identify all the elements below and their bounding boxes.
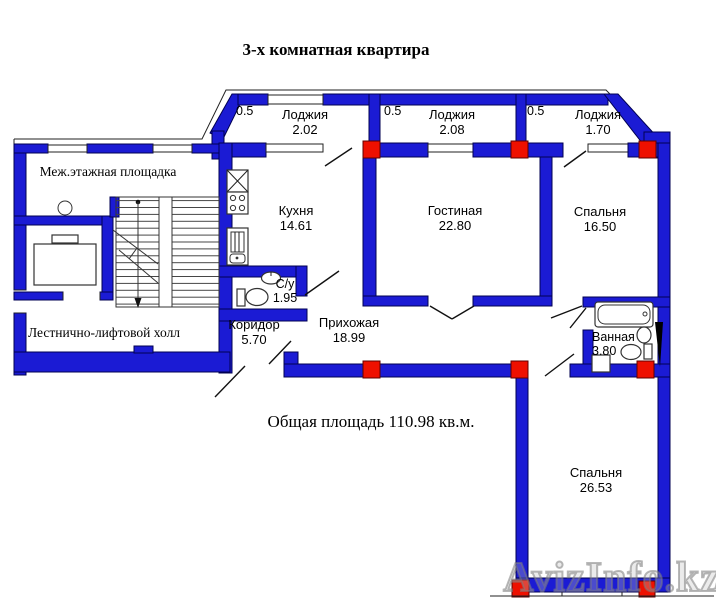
kitchen-sink-icon <box>227 228 248 265</box>
room-label-living: Гостиная22.80 <box>428 204 483 233</box>
page-title: 3-х комнатная квартира <box>243 40 430 60</box>
room-label-bathroom: Ванная3.80 <box>592 330 635 359</box>
counter-icon <box>227 170 248 192</box>
parapet-label-1: 0.5 <box>236 104 253 118</box>
room-label-hallway: Прихожая18.99 <box>319 316 379 345</box>
parapet-label-2: 0.5 <box>384 104 401 118</box>
elevator-icon <box>34 235 100 300</box>
garbage-chute-icon <box>58 201 72 215</box>
walls <box>14 143 670 592</box>
room-label-bedroom-2: Спальня26.53 <box>570 466 622 495</box>
toilet-icon <box>237 289 268 307</box>
room-label-bedroom-1: Спальня16.50 <box>574 205 626 234</box>
bathtub-icon <box>595 302 653 327</box>
room-label-loggia-2: Лоджия2.08 <box>429 108 475 137</box>
floor-plan-drawing <box>0 0 716 600</box>
stove-icon <box>227 192 248 214</box>
sink-icon <box>637 327 651 343</box>
room-label-kitchen: Кухня14.61 <box>279 204 314 233</box>
room-label-corridor: Коридор5.70 <box>228 318 279 347</box>
total-area-text: Общая площадь 110.98 кв.м. <box>268 412 475 432</box>
parapet-label-3: 0.5 <box>527 104 544 118</box>
staircase <box>113 197 219 308</box>
room-label-wc: С/у1.95 <box>273 277 297 305</box>
floor-plan: 3-х комнатная квартира 0.5 0.5 0.5 Лоджи… <box>0 0 716 600</box>
room-label-loggia-1: Лоджия2.02 <box>282 108 328 137</box>
room-label-hall: Лестнично-лифтовой холл <box>28 325 180 340</box>
room-label-landing: Меж.этажная площадка <box>40 164 177 179</box>
room-label-loggia-3: Лоджия1.70 <box>575 108 621 137</box>
watermark: AvizInfo.kz <box>503 554 716 600</box>
